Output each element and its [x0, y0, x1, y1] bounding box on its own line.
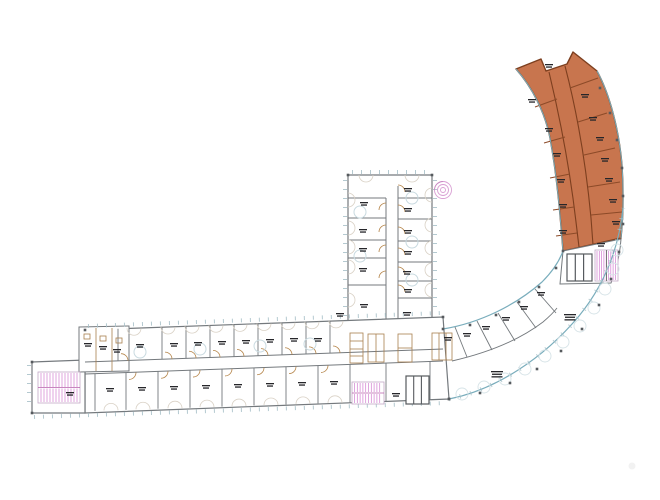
elevator-mid — [406, 376, 429, 404]
room-label — [564, 314, 576, 321]
spiral-stair-icon — [435, 182, 452, 199]
room-label — [545, 64, 553, 68]
bottom-wing — [29, 313, 449, 417]
elevator-shafts — [567, 254, 592, 281]
highlighted-zone-curved-upper-wing[interactable] — [516, 52, 623, 251]
vertical-wing — [345, 172, 435, 322]
room-label — [491, 371, 503, 378]
print-smudge — [629, 463, 636, 470]
stair-mid — [352, 382, 384, 404]
room-label — [528, 99, 536, 103]
floor-plan-canvas — [0, 0, 660, 500]
floor-plan-viewport — [0, 0, 660, 500]
stair-west — [38, 372, 80, 403]
stair-east — [595, 250, 618, 281]
